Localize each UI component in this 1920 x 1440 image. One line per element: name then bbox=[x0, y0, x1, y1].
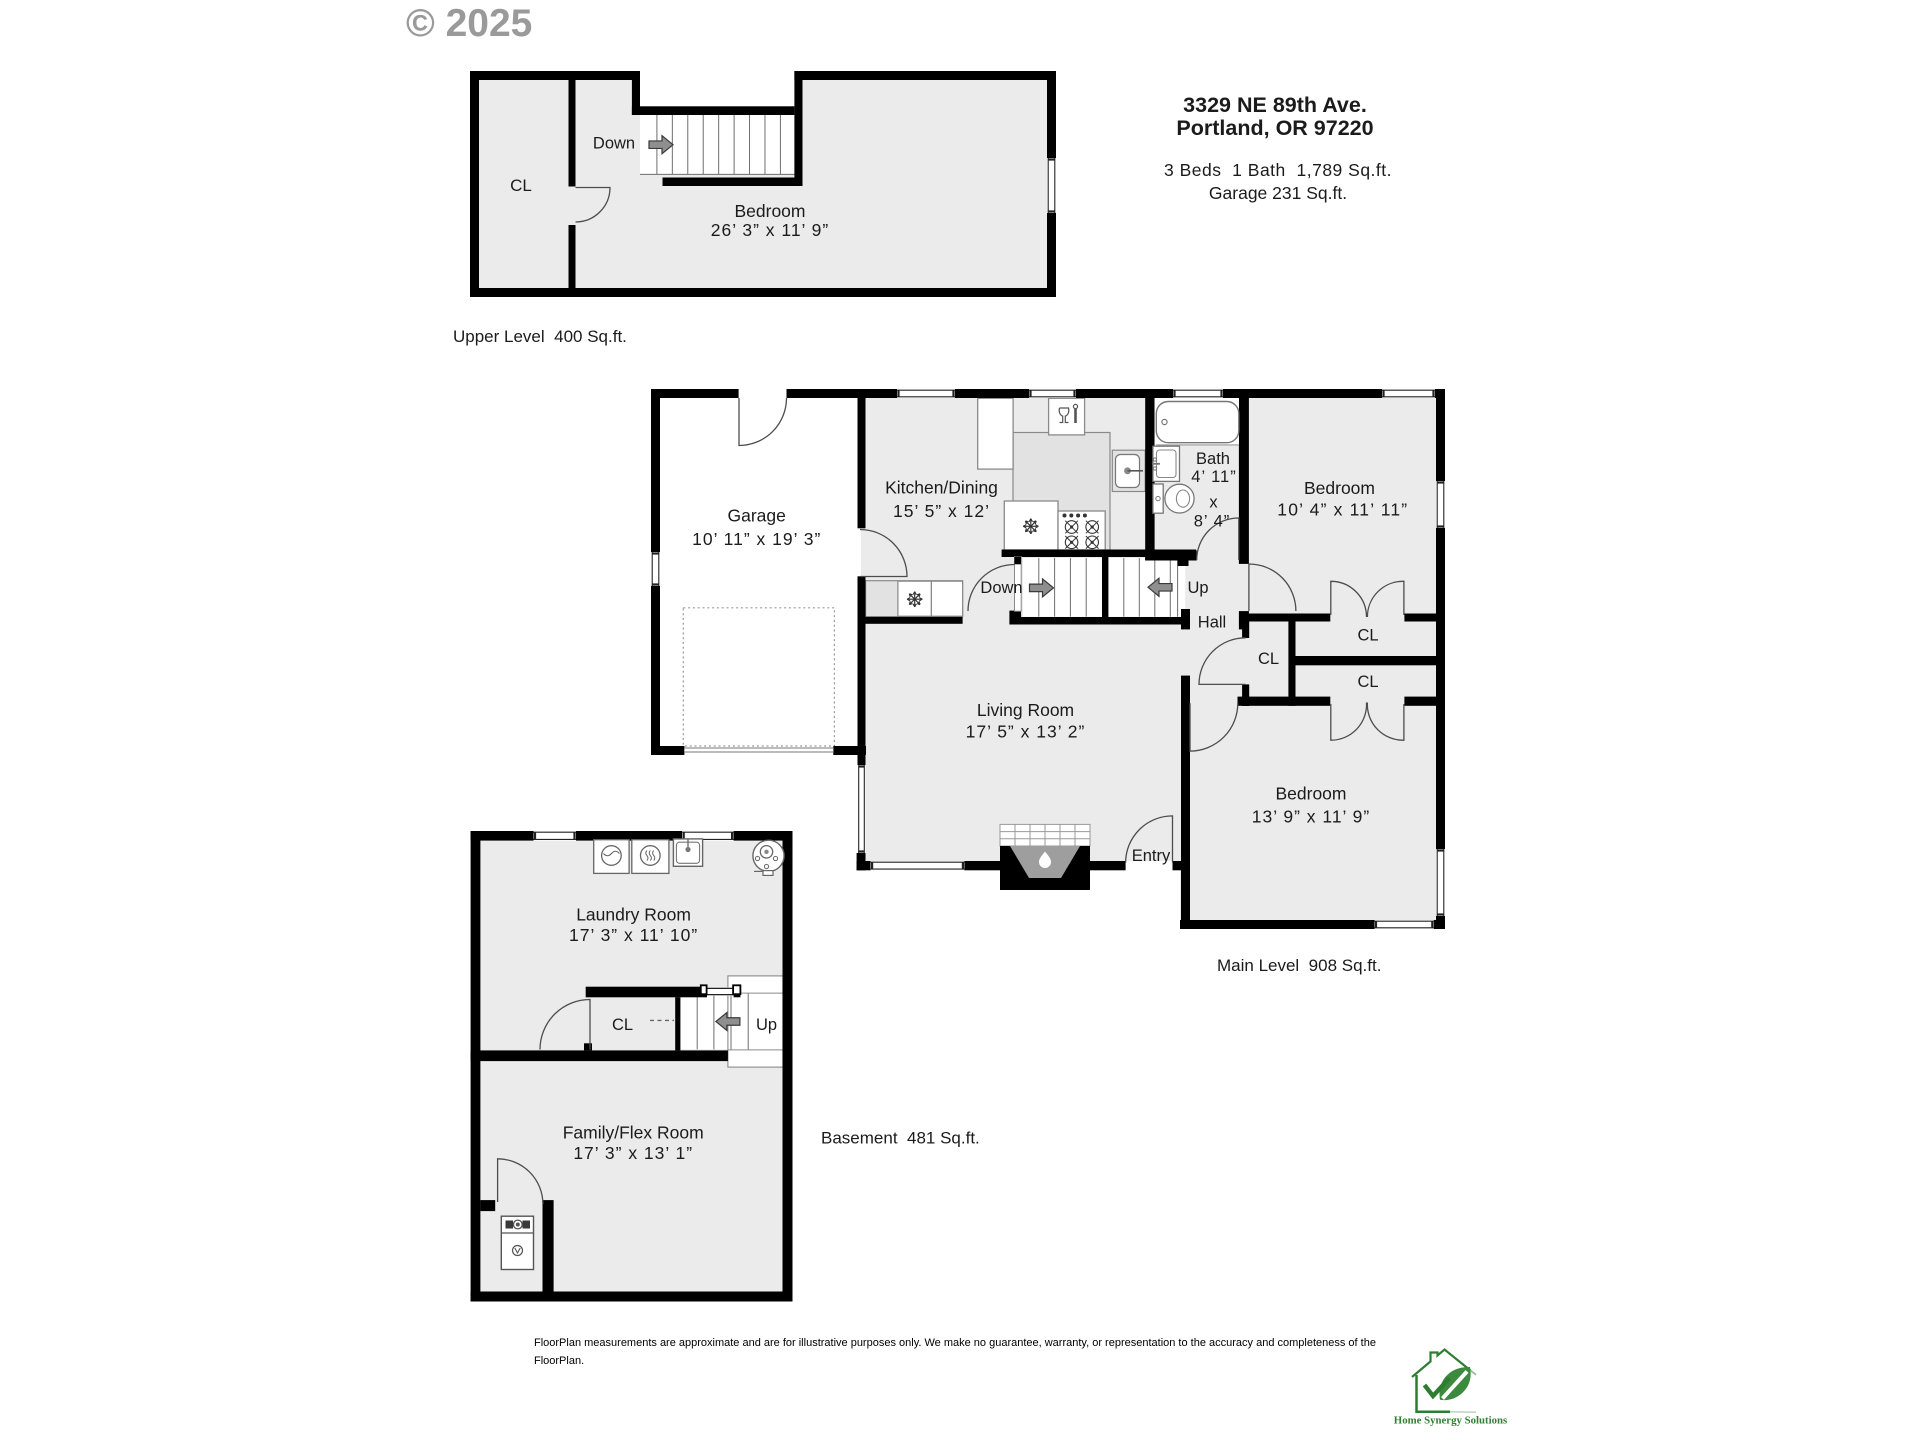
svg-text:Basement 481 Sq.ft.: Basement 481 Sq.ft. bbox=[821, 1129, 980, 1148]
svg-text:8’ 4”: 8’ 4” bbox=[1194, 513, 1231, 531]
svg-text:Upper Level 400 Sq.ft.: Upper Level 400 Sq.ft. bbox=[453, 327, 627, 346]
svg-text:© 2025: © 2025 bbox=[406, 2, 532, 45]
svg-text:10’ 4” x 11’ 11”: 10’ 4” x 11’ 11” bbox=[1277, 500, 1408, 520]
svg-text:x: x bbox=[1209, 494, 1218, 512]
svg-text:26’ 3” x 11’ 9”: 26’ 3” x 11’ 9” bbox=[711, 220, 829, 240]
svg-text:CL: CL bbox=[1357, 627, 1378, 645]
svg-text:Hall: Hall bbox=[1198, 614, 1226, 632]
svg-text:Home Synergy Solutions: Home Synergy Solutions bbox=[1394, 1415, 1507, 1427]
svg-text:10’ 11” x 19’ 3”: 10’ 11” x 19’ 3” bbox=[692, 529, 821, 549]
svg-text:Main Level 908 Sq.ft.: Main Level 908 Sq.ft. bbox=[1217, 956, 1381, 975]
svg-text:Up: Up bbox=[1187, 579, 1208, 597]
svg-text:Bath: Bath bbox=[1196, 450, 1230, 468]
svg-text:Bedroom: Bedroom bbox=[1304, 478, 1375, 498]
svg-text:17’ 5” x 13’ 2”: 17’ 5” x 13’ 2” bbox=[966, 722, 1086, 742]
svg-text:Kitchen/Dining: Kitchen/Dining bbox=[885, 478, 998, 498]
svg-text:CL: CL bbox=[612, 1016, 633, 1034]
svg-text:Up: Up bbox=[756, 1016, 777, 1034]
svg-text:Entry: Entry bbox=[1132, 847, 1171, 865]
svg-text:CL: CL bbox=[510, 176, 532, 195]
svg-text:CL: CL bbox=[1357, 673, 1378, 691]
svg-text:Down: Down bbox=[593, 134, 635, 152]
svg-text:3329 NE 89th Ave.: 3329 NE 89th Ave. bbox=[1183, 93, 1367, 117]
svg-text:3 Beds 1 Bath 1,789 Sq.ft.: 3 Beds 1 Bath 1,789 Sq.ft. bbox=[1164, 160, 1392, 180]
svg-text:Family/Flex Room: Family/Flex Room bbox=[563, 1123, 704, 1143]
svg-text:17’ 3” x 11’ 10”: 17’ 3” x 11’ 10” bbox=[569, 925, 698, 945]
svg-text:Down: Down bbox=[980, 579, 1022, 597]
svg-text:FloorPlan measurements are app: FloorPlan measurements are approximate a… bbox=[534, 1337, 1376, 1349]
svg-text:CL: CL bbox=[1258, 650, 1279, 668]
svg-text:Garage: Garage bbox=[728, 506, 786, 526]
svg-text:Living Room: Living Room bbox=[977, 700, 1074, 720]
svg-text:Garage 231 Sq.ft.: Garage 231 Sq.ft. bbox=[1209, 183, 1347, 203]
svg-text:Bedroom: Bedroom bbox=[1275, 784, 1346, 804]
svg-text:FloorPlan.: FloorPlan. bbox=[534, 1355, 584, 1367]
svg-text:13’ 9” x 11’ 9”: 13’ 9” x 11’ 9” bbox=[1252, 807, 1370, 827]
svg-text:15’ 5” x 12’: 15’ 5” x 12’ bbox=[893, 501, 990, 521]
svg-text:Laundry Room: Laundry Room bbox=[576, 905, 691, 925]
svg-text:17’ 3” x 13’ 1”: 17’ 3” x 13’ 1” bbox=[573, 1143, 693, 1163]
svg-text:Portland, OR 97220: Portland, OR 97220 bbox=[1176, 116, 1373, 140]
svg-text:4’ 11”: 4’ 11” bbox=[1191, 468, 1236, 486]
svg-text:Bedroom: Bedroom bbox=[734, 201, 805, 221]
